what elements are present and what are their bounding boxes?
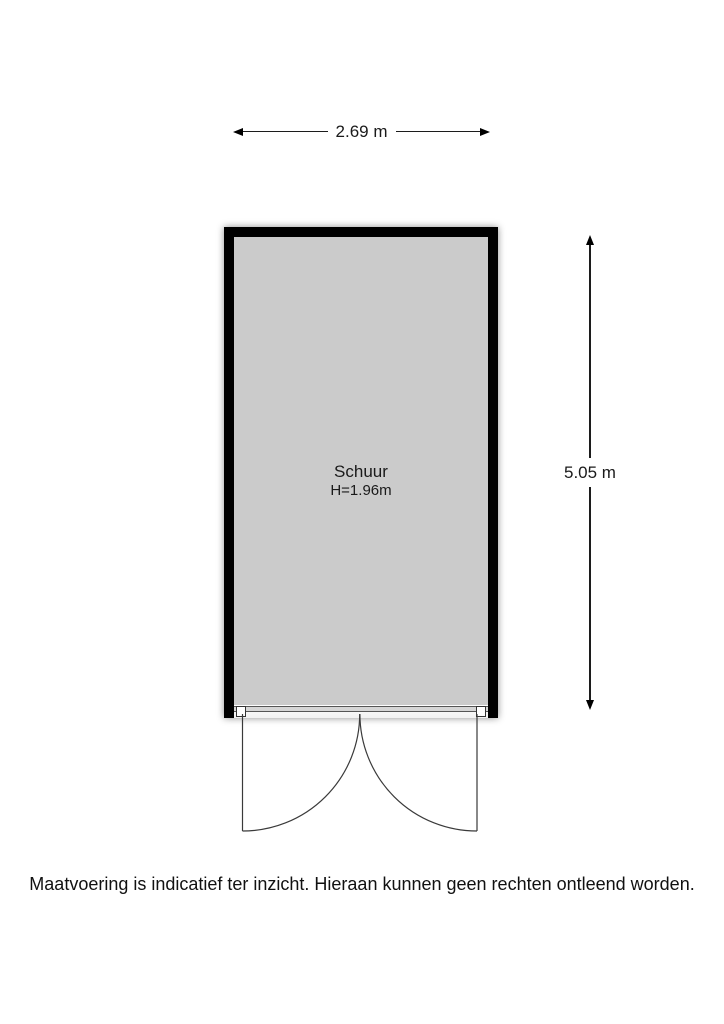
width-dimension: 2.69 m — [233, 123, 490, 140]
dimension-line-bottom — [589, 487, 591, 700]
room-name: Schuur — [330, 461, 391, 482]
arrow-right-icon — [480, 128, 490, 136]
height-dimension-label: 5.05 m — [564, 458, 616, 487]
double-door-swing-icon — [234, 700, 488, 840]
disclaimer-text: Maatvoering is indicatief ter inzicht. H… — [0, 874, 724, 895]
room-schuur: Schuur H=1.96m — [224, 227, 498, 718]
room-ceiling-height: H=1.96m — [330, 482, 391, 501]
room-label: Schuur H=1.96m — [330, 461, 391, 501]
dimension-line-left — [243, 131, 328, 133]
width-dimension-label: 2.69 m — [328, 123, 396, 140]
arrow-left-icon — [233, 128, 243, 136]
dimension-line-right — [396, 131, 481, 133]
room-floor: Schuur H=1.96m — [234, 237, 488, 705]
arrow-down-icon — [586, 700, 594, 710]
dimension-line-top — [589, 245, 591, 458]
height-dimension: 5.05 m — [559, 235, 621, 710]
floorplan-canvas: 2.69 m Schuur H=1.96m 5.05 m — [0, 0, 724, 1024]
arrow-up-icon — [586, 235, 594, 245]
